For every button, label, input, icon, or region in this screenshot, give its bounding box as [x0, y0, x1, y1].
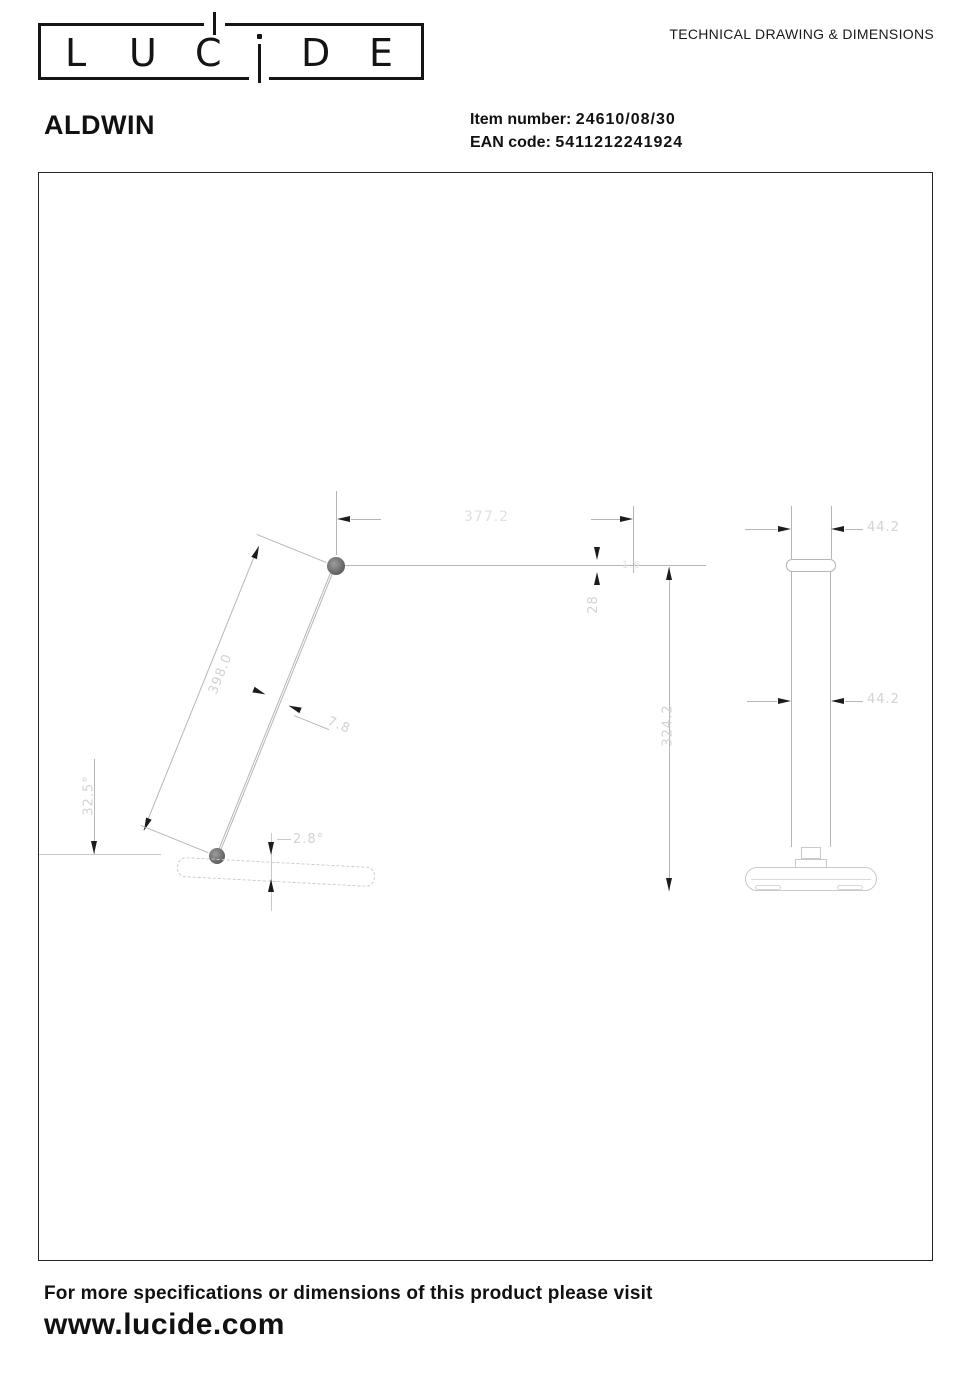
dim-extension-line [791, 506, 792, 559]
side-base-plate [177, 857, 376, 887]
arrowhead [91, 841, 97, 854]
logo-letter-u: U [129, 31, 157, 75]
ean-value: 5411212241924 [555, 134, 683, 151]
item-number-label: Item number: [470, 111, 571, 128]
lucide-logo: L U C D E [38, 23, 424, 80]
arrowhead [268, 842, 274, 855]
arrowhead [251, 545, 261, 559]
dim-joint-detail: 1.6 [622, 560, 641, 571]
ground-reference-line [39, 854, 161, 855]
logo-letter-e: E [369, 31, 393, 75]
arrowhead [252, 687, 266, 697]
dim-head-width: 44.2 [867, 520, 900, 535]
front-lamp-body [791, 571, 831, 847]
logo-letter-d: D [301, 31, 330, 75]
page: L U C D E TECHNICAL DRAWING & DIMENSIONS… [0, 0, 970, 1374]
ean-label: EAN code: [470, 134, 551, 151]
logo-letter-c: C [195, 31, 222, 75]
dim-line-stub [591, 519, 621, 520]
dim-total-height: 324.2 [661, 704, 676, 746]
arrowhead [666, 567, 672, 580]
footer-website: www.lucide.com [44, 1308, 285, 1342]
dim-leader-line [277, 839, 291, 840]
dim-line-stub [745, 529, 777, 530]
dim-arm-diameter: 7.8 [325, 714, 353, 737]
dim-body-width: 44.2 [867, 692, 900, 707]
dim-line-stub [845, 701, 863, 702]
item-number-value: 24610/08/30 [576, 111, 676, 128]
front-base-foot [755, 885, 781, 890]
side-top-hinge-joint [327, 557, 345, 575]
product-meta: Item number: 24610/08/30 EAN code: 54112… [470, 108, 683, 154]
dim-line-stub [351, 519, 381, 520]
arrowhead [620, 516, 633, 522]
drawing-frame: 32.5° 398.0 7.8 2.8° 377.2 28 [38, 172, 933, 1261]
dim-extension-line [831, 506, 832, 559]
logo-letter-l: L [65, 31, 86, 75]
ean-line: EAN code: 5411212241924 [470, 131, 683, 154]
dim-extension-line [141, 825, 209, 853]
dim-extension-line [336, 491, 337, 555]
side-arm-horizontal-line [336, 565, 706, 566]
logo-i-dot [257, 34, 262, 39]
side-arm-diagonal-tube [216, 565, 336, 856]
logo-caret-mark [213, 12, 216, 35]
dim-line-stub [845, 529, 863, 530]
front-base-plate-line [751, 879, 871, 880]
dim-arm-reach: 377.2 [464, 509, 509, 525]
arrowhead [337, 516, 350, 522]
dim-extension-line [257, 534, 327, 563]
arrowhead [666, 878, 672, 891]
dim-line-stub [747, 701, 777, 702]
arrowhead [831, 526, 844, 532]
footer-note: For more specifications or dimensions of… [44, 1283, 653, 1305]
arrowhead [831, 698, 844, 704]
product-name: ALDWIN [44, 110, 155, 141]
front-base-neck [801, 847, 821, 859]
arrowhead [594, 547, 600, 560]
arrowhead [287, 703, 301, 713]
logo-i-stem [258, 44, 261, 83]
dim-line-arm-length: 398.0 [143, 546, 259, 831]
arrowhead [594, 572, 600, 585]
item-number-line: Item number: 24610/08/30 [470, 108, 683, 131]
dim-arm-length: 398.0 [206, 652, 236, 697]
dim-base-tilt: 2.8° [293, 832, 324, 847]
arrowhead [268, 879, 274, 892]
dim-base-angle: 32.5° [82, 775, 97, 815]
arrowhead [778, 698, 791, 704]
dim-arm-drop: 28 [586, 595, 601, 614]
doc-type-title: TECHNICAL DRAWING & DIMENSIONS [669, 26, 934, 42]
arrowhead [778, 526, 791, 532]
front-base-foot [837, 885, 863, 890]
